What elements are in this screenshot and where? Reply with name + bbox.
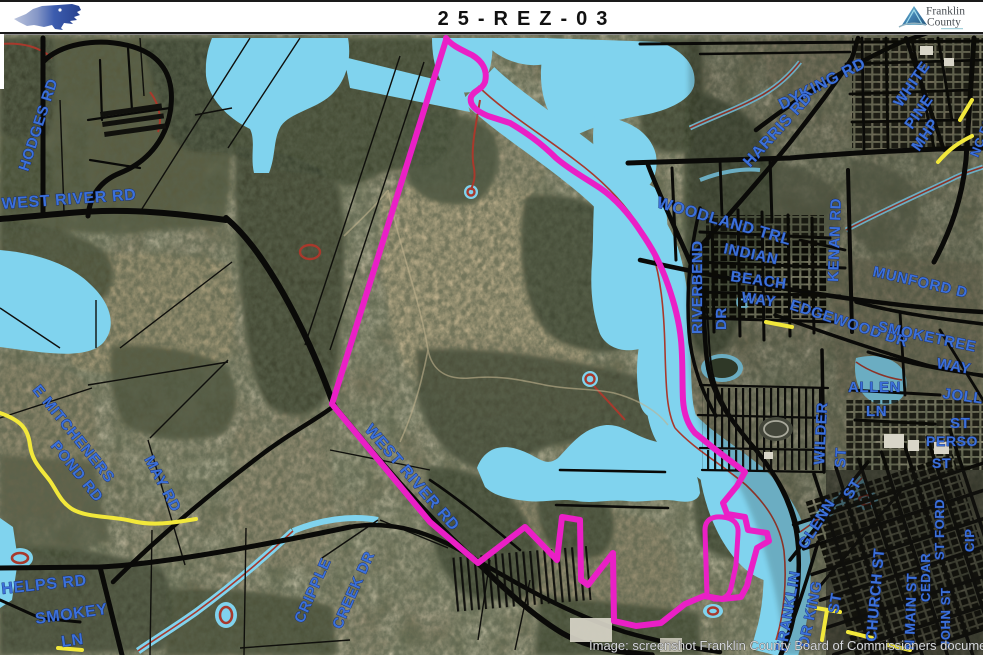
svg-text:PERSO: PERSO (926, 433, 978, 449)
svg-text:ALLEN: ALLEN (848, 379, 901, 396)
svg-text:ST: ST (950, 415, 970, 432)
svg-text:LN: LN (866, 403, 887, 420)
svg-text:25-REZ-03: 25-REZ-03 (438, 8, 617, 30)
svg-text:ST: ST (825, 592, 845, 615)
svg-text:Image: screenshot Franklin Cou: Image: screenshot Franklin County Board … (589, 638, 983, 653)
svg-text:CIP: CIP (962, 529, 977, 552)
svg-text:ST FORD: ST FORD (932, 499, 947, 560)
svg-text:ST: ST (932, 455, 951, 471)
svg-text:WILDER: WILDER (811, 402, 831, 466)
svg-text:County: County (927, 17, 961, 29)
svg-text:RIVERBEND: RIVERBEND (689, 240, 706, 334)
svg-text:DR: DR (713, 307, 730, 330)
svg-text:ST: ST (832, 447, 850, 468)
svg-text:LN: LN (60, 631, 85, 651)
svg-text:CEDAR: CEDAR (918, 553, 933, 602)
svg-text:KENAN RD: KENAN RD (825, 198, 845, 283)
